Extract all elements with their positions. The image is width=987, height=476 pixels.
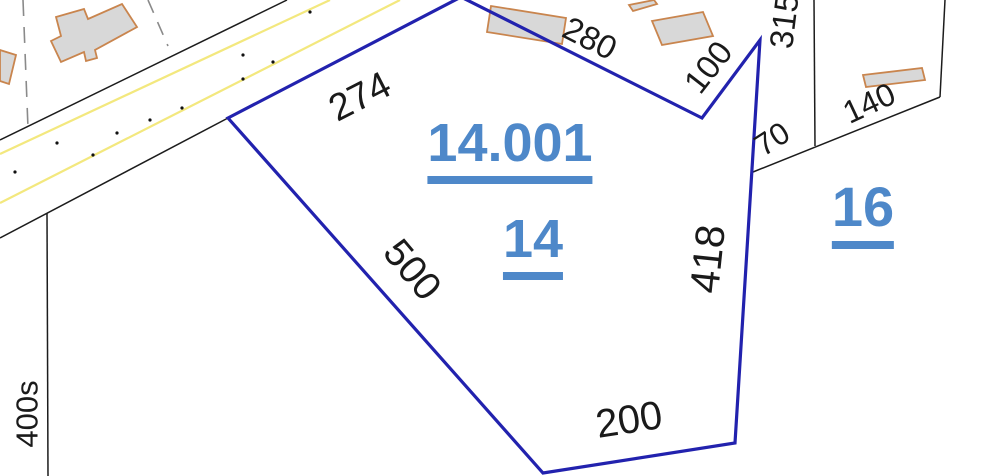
dim-label-400s: 400s [12,380,43,447]
survey-dot [241,53,244,56]
survey-dot [148,118,151,121]
road-lower-edge-line [0,118,228,238]
survey-dot [308,10,311,13]
lot-label-16[interactable]: 16 [832,179,894,249]
lot-label-14[interactable]: 14 [503,212,563,280]
survey-dot [91,153,94,156]
road-centerline-yellow-1 [0,0,330,154]
parcel-map-canvas: 274 280 100 315 140 70 418 500 200 400s … [0,0,987,476]
survey-dot [13,170,16,173]
building-house-top-left [51,4,137,62]
survey-dot [115,131,118,134]
dim-label-418: 418 [684,223,732,295]
survey-dot [241,77,244,80]
lot-label-14001[interactable]: 14.001 [427,116,592,184]
survey-dot [55,141,58,144]
building-on-280-line [487,6,566,44]
building-partial-top-edge [629,0,657,11]
survey-dot [271,60,274,63]
dashed-lot-line-top [148,0,168,46]
parcel-lines [47,0,945,476]
parcel-line-right-vertical [814,0,815,146]
building-partial-left-edge [0,50,16,84]
dashed-lot-line-left [23,0,28,128]
parcel-line-left-vertical [47,213,48,476]
survey-dot [180,106,183,109]
road-upper-edge-line [0,0,287,140]
dim-label-200: 200 [593,395,665,445]
dim-label-315: 315 [764,0,803,50]
parcel-line-ne-corner [940,0,945,97]
